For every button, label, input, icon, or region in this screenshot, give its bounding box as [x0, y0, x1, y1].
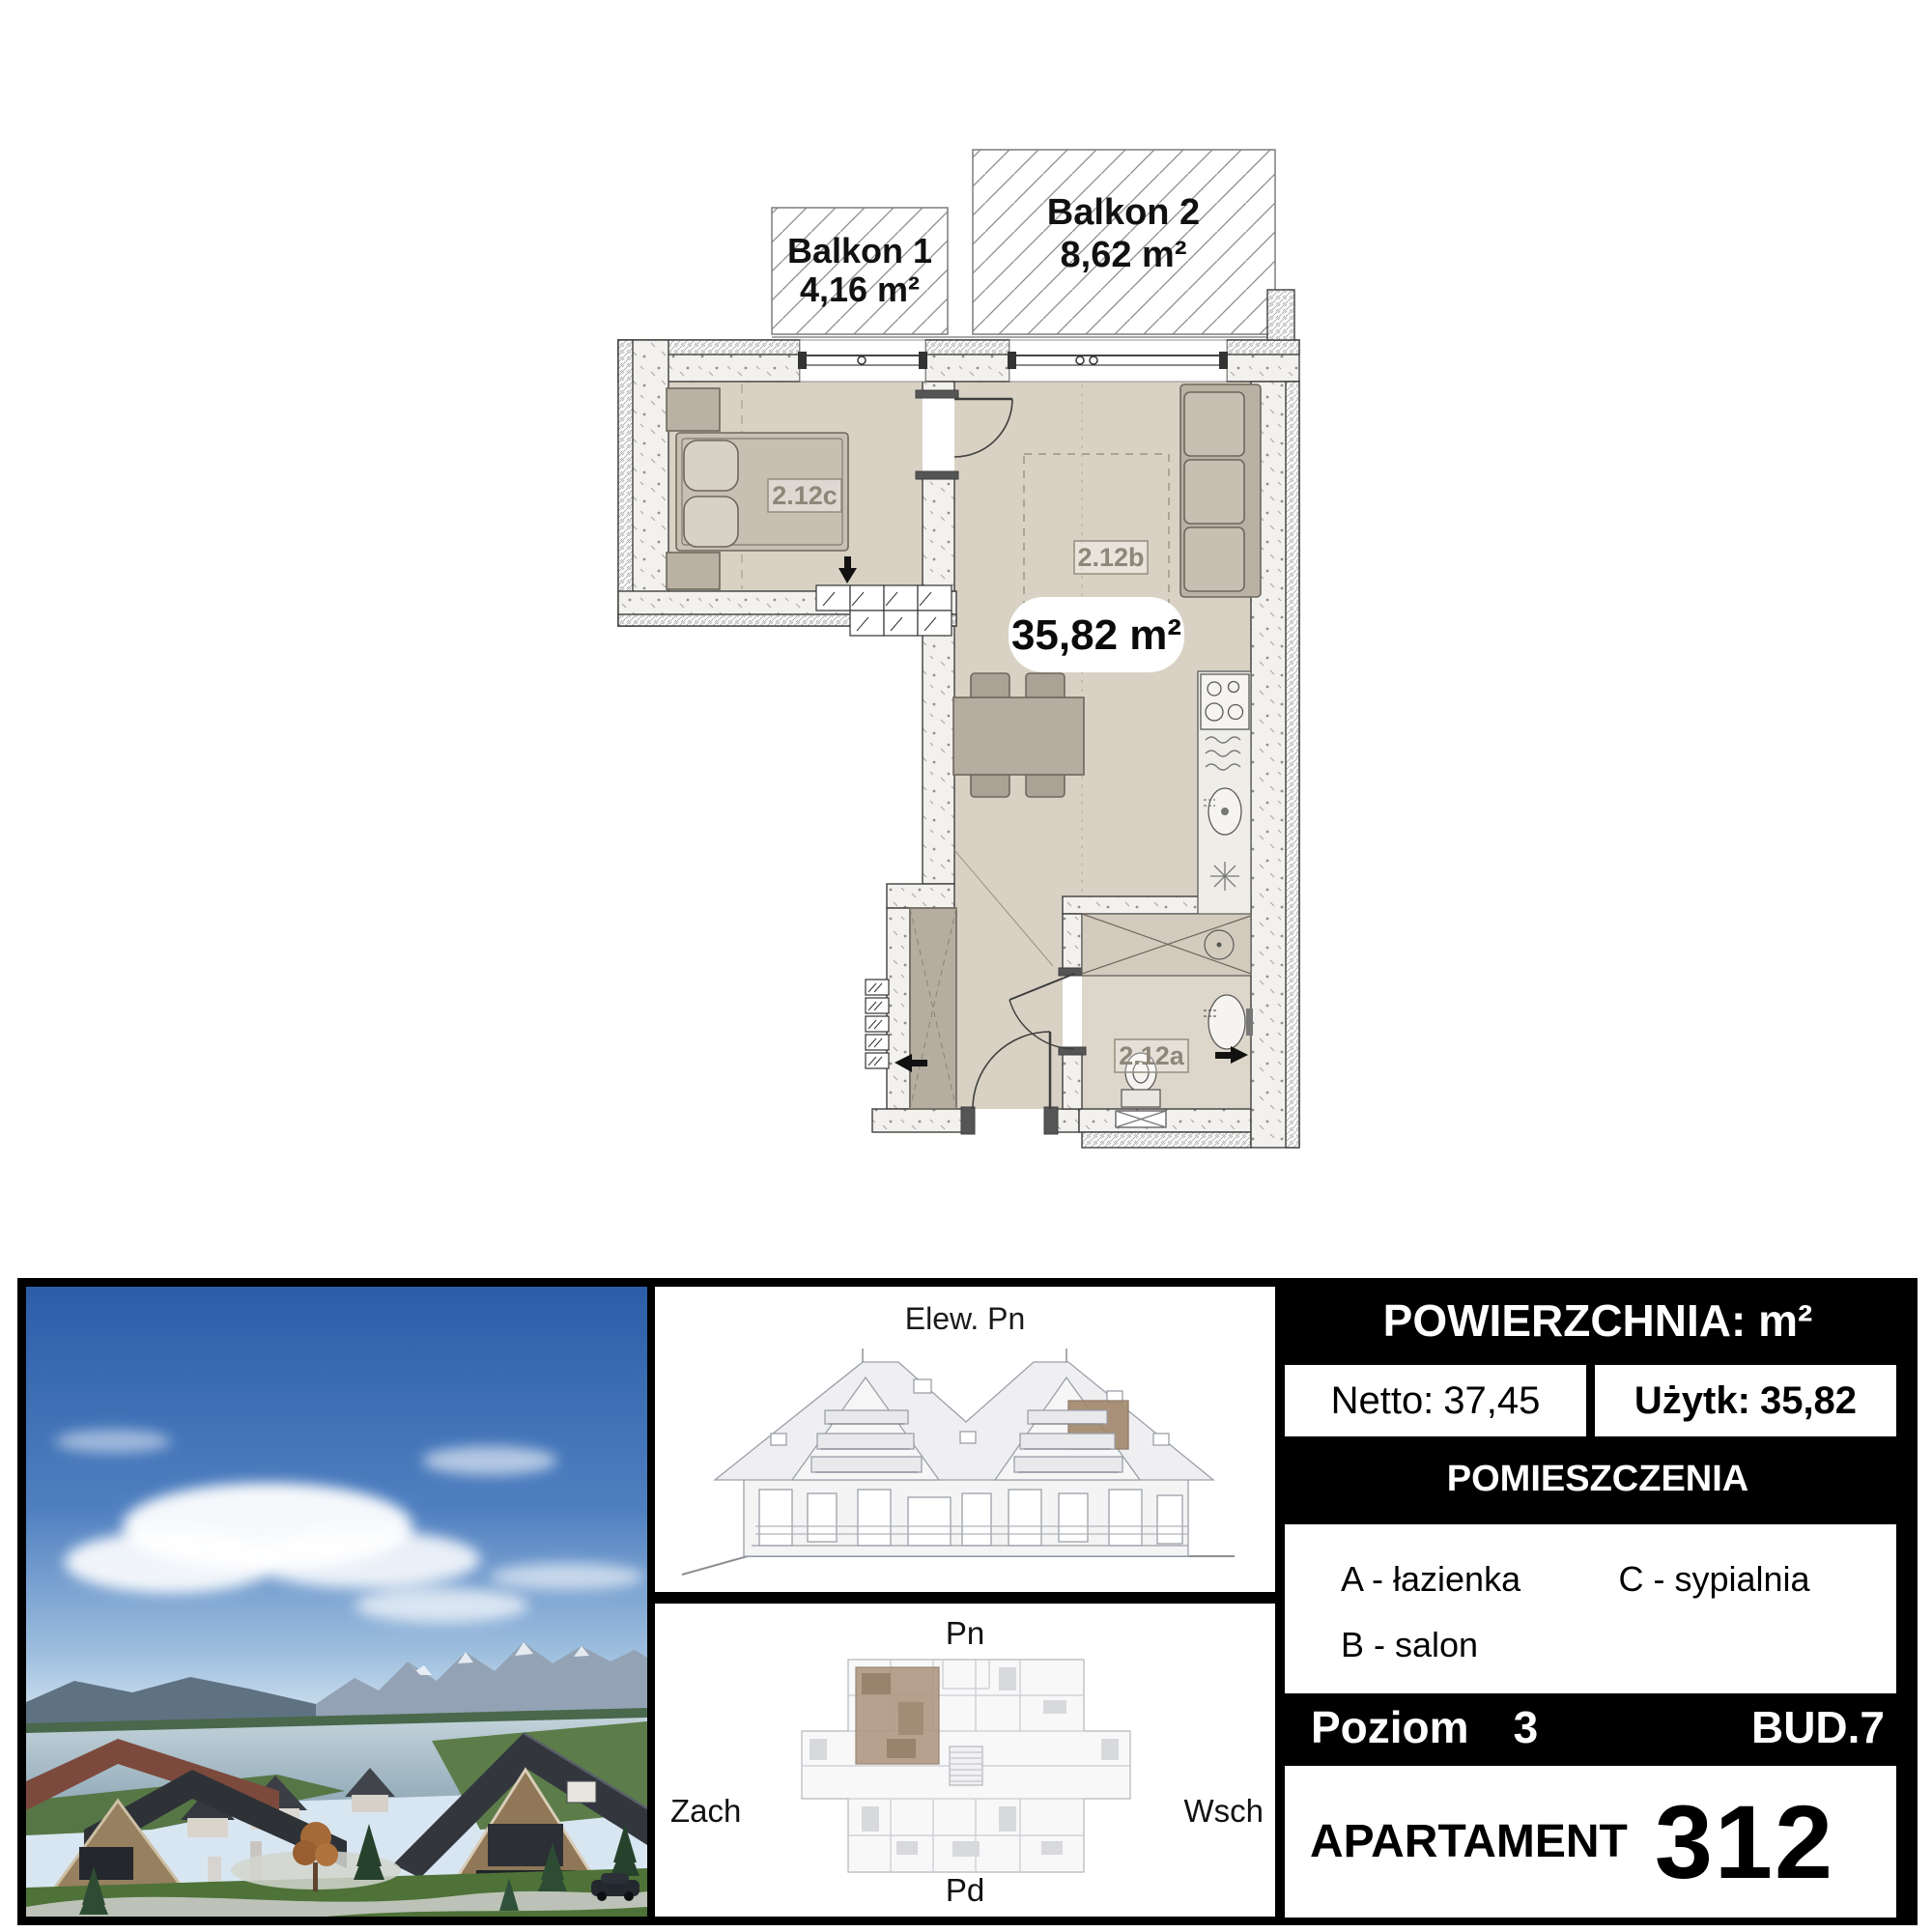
- meter-boxes: [866, 980, 889, 1068]
- area-header: POWIERZCHNIA: m²: [1278, 1278, 1918, 1363]
- legend-bathroom: A - łazienka: [1341, 1559, 1619, 1600]
- level-value: 3: [1514, 1702, 1539, 1752]
- photo-panel: [26, 1287, 647, 1917]
- apartment-card-page: Balkon 1 4,16 m² Balkon 2 8,62 m²: [0, 0, 1932, 1932]
- room-label-bedroom: 2.12c: [768, 479, 841, 512]
- balcony-2: Balkon 2 8,62 m²: [973, 150, 1275, 334]
- shower: [1082, 914, 1251, 976]
- bottom-band: Elew. Pn: [17, 1278, 1918, 1925]
- total-area-badge: 35,82 m²: [1009, 597, 1184, 672]
- netto-label: Netto:: [1331, 1379, 1435, 1423]
- elevation-drawing: Elew. Pn: [655, 1287, 1275, 1592]
- building-label: BUD.7: [1751, 1701, 1885, 1753]
- svg-text:35,82 m²: 35,82 m²: [1011, 611, 1181, 659]
- level-label: Poziom: [1311, 1702, 1469, 1752]
- svg-text:2.12c: 2.12c: [772, 481, 838, 510]
- area-metrics: Netto: 37,45 Użytk: 35,82: [1285, 1365, 1896, 1436]
- netto-value: 37,45: [1443, 1379, 1540, 1423]
- rooms-header: POMIESZCZENIA: [1278, 1436, 1918, 1521]
- floor-plan-drawing: Balkon 1 4,16 m² Balkon 2 8,62 m²: [0, 0, 1932, 1278]
- legend-living: B - salon: [1341, 1625, 1619, 1665]
- development-render-image: [26, 1287, 647, 1917]
- sofa: [1180, 384, 1261, 597]
- uzytk-label: Użytk:: [1634, 1379, 1750, 1423]
- keyplan-highlighted-unit: [856, 1667, 939, 1764]
- wall-symbol-boxes: [816, 585, 952, 636]
- hall-floor: [954, 896, 1063, 1109]
- legend-bedroom: C - sypialnia: [1619, 1559, 1897, 1600]
- balcony-1: Balkon 1 4,16 m²: [772, 208, 948, 334]
- balcony-1-name: Balkon 1: [787, 231, 932, 270]
- room-label-living: 2.12b: [1074, 541, 1148, 574]
- info-panel: POWIERZCHNIA: m² Netto: 37,45 Użytk: 35,…: [1278, 1278, 1918, 1925]
- compass-south-label: Pd: [946, 1872, 984, 1909]
- floor-plan-section: Balkon 1 4,16 m² Balkon 2 8,62 m²: [0, 0, 1932, 1278]
- elevation-panel: Elew. Pn: [655, 1287, 1275, 1592]
- apartment-number: 312: [1655, 1781, 1834, 1902]
- room-label-bathroom: 2.12a: [1115, 1039, 1188, 1072]
- uzytk-box: Użytk: 35,82: [1595, 1365, 1896, 1436]
- compass-north-label: Pn: [946, 1615, 984, 1652]
- apartment-box: APARTAMENT 312: [1285, 1766, 1896, 1918]
- netto-box: Netto: 37,45: [1285, 1365, 1586, 1436]
- apartment-label: APARTAMENT: [1310, 1815, 1628, 1868]
- wardrobe: [910, 908, 956, 1109]
- svg-text:2.12b: 2.12b: [1077, 543, 1144, 572]
- window-living: [1008, 340, 1228, 382]
- compass-west-label: Zach: [670, 1793, 741, 1830]
- elevation-title: Elew. Pn: [905, 1301, 1026, 1336]
- window-bedroom: [798, 340, 927, 382]
- svg-text:2.12a: 2.12a: [1119, 1041, 1185, 1070]
- balcony-2-name: Balkon 2: [1047, 192, 1200, 233]
- rooms-legend: A - łazienka C - sypialnia B - salon: [1285, 1524, 1896, 1693]
- balcony-1-area: 4,16 m²: [800, 270, 920, 309]
- keyplan-panel: Pn Zach Wsch Pd: [655, 1604, 1275, 1917]
- uzytk-value: 35,82: [1760, 1379, 1857, 1423]
- compass-east-label: Wsch: [1184, 1793, 1264, 1830]
- level-row: Poziom3 BUD.7: [1278, 1693, 1918, 1761]
- balcony-2-area: 8,62 m²: [1061, 235, 1187, 275]
